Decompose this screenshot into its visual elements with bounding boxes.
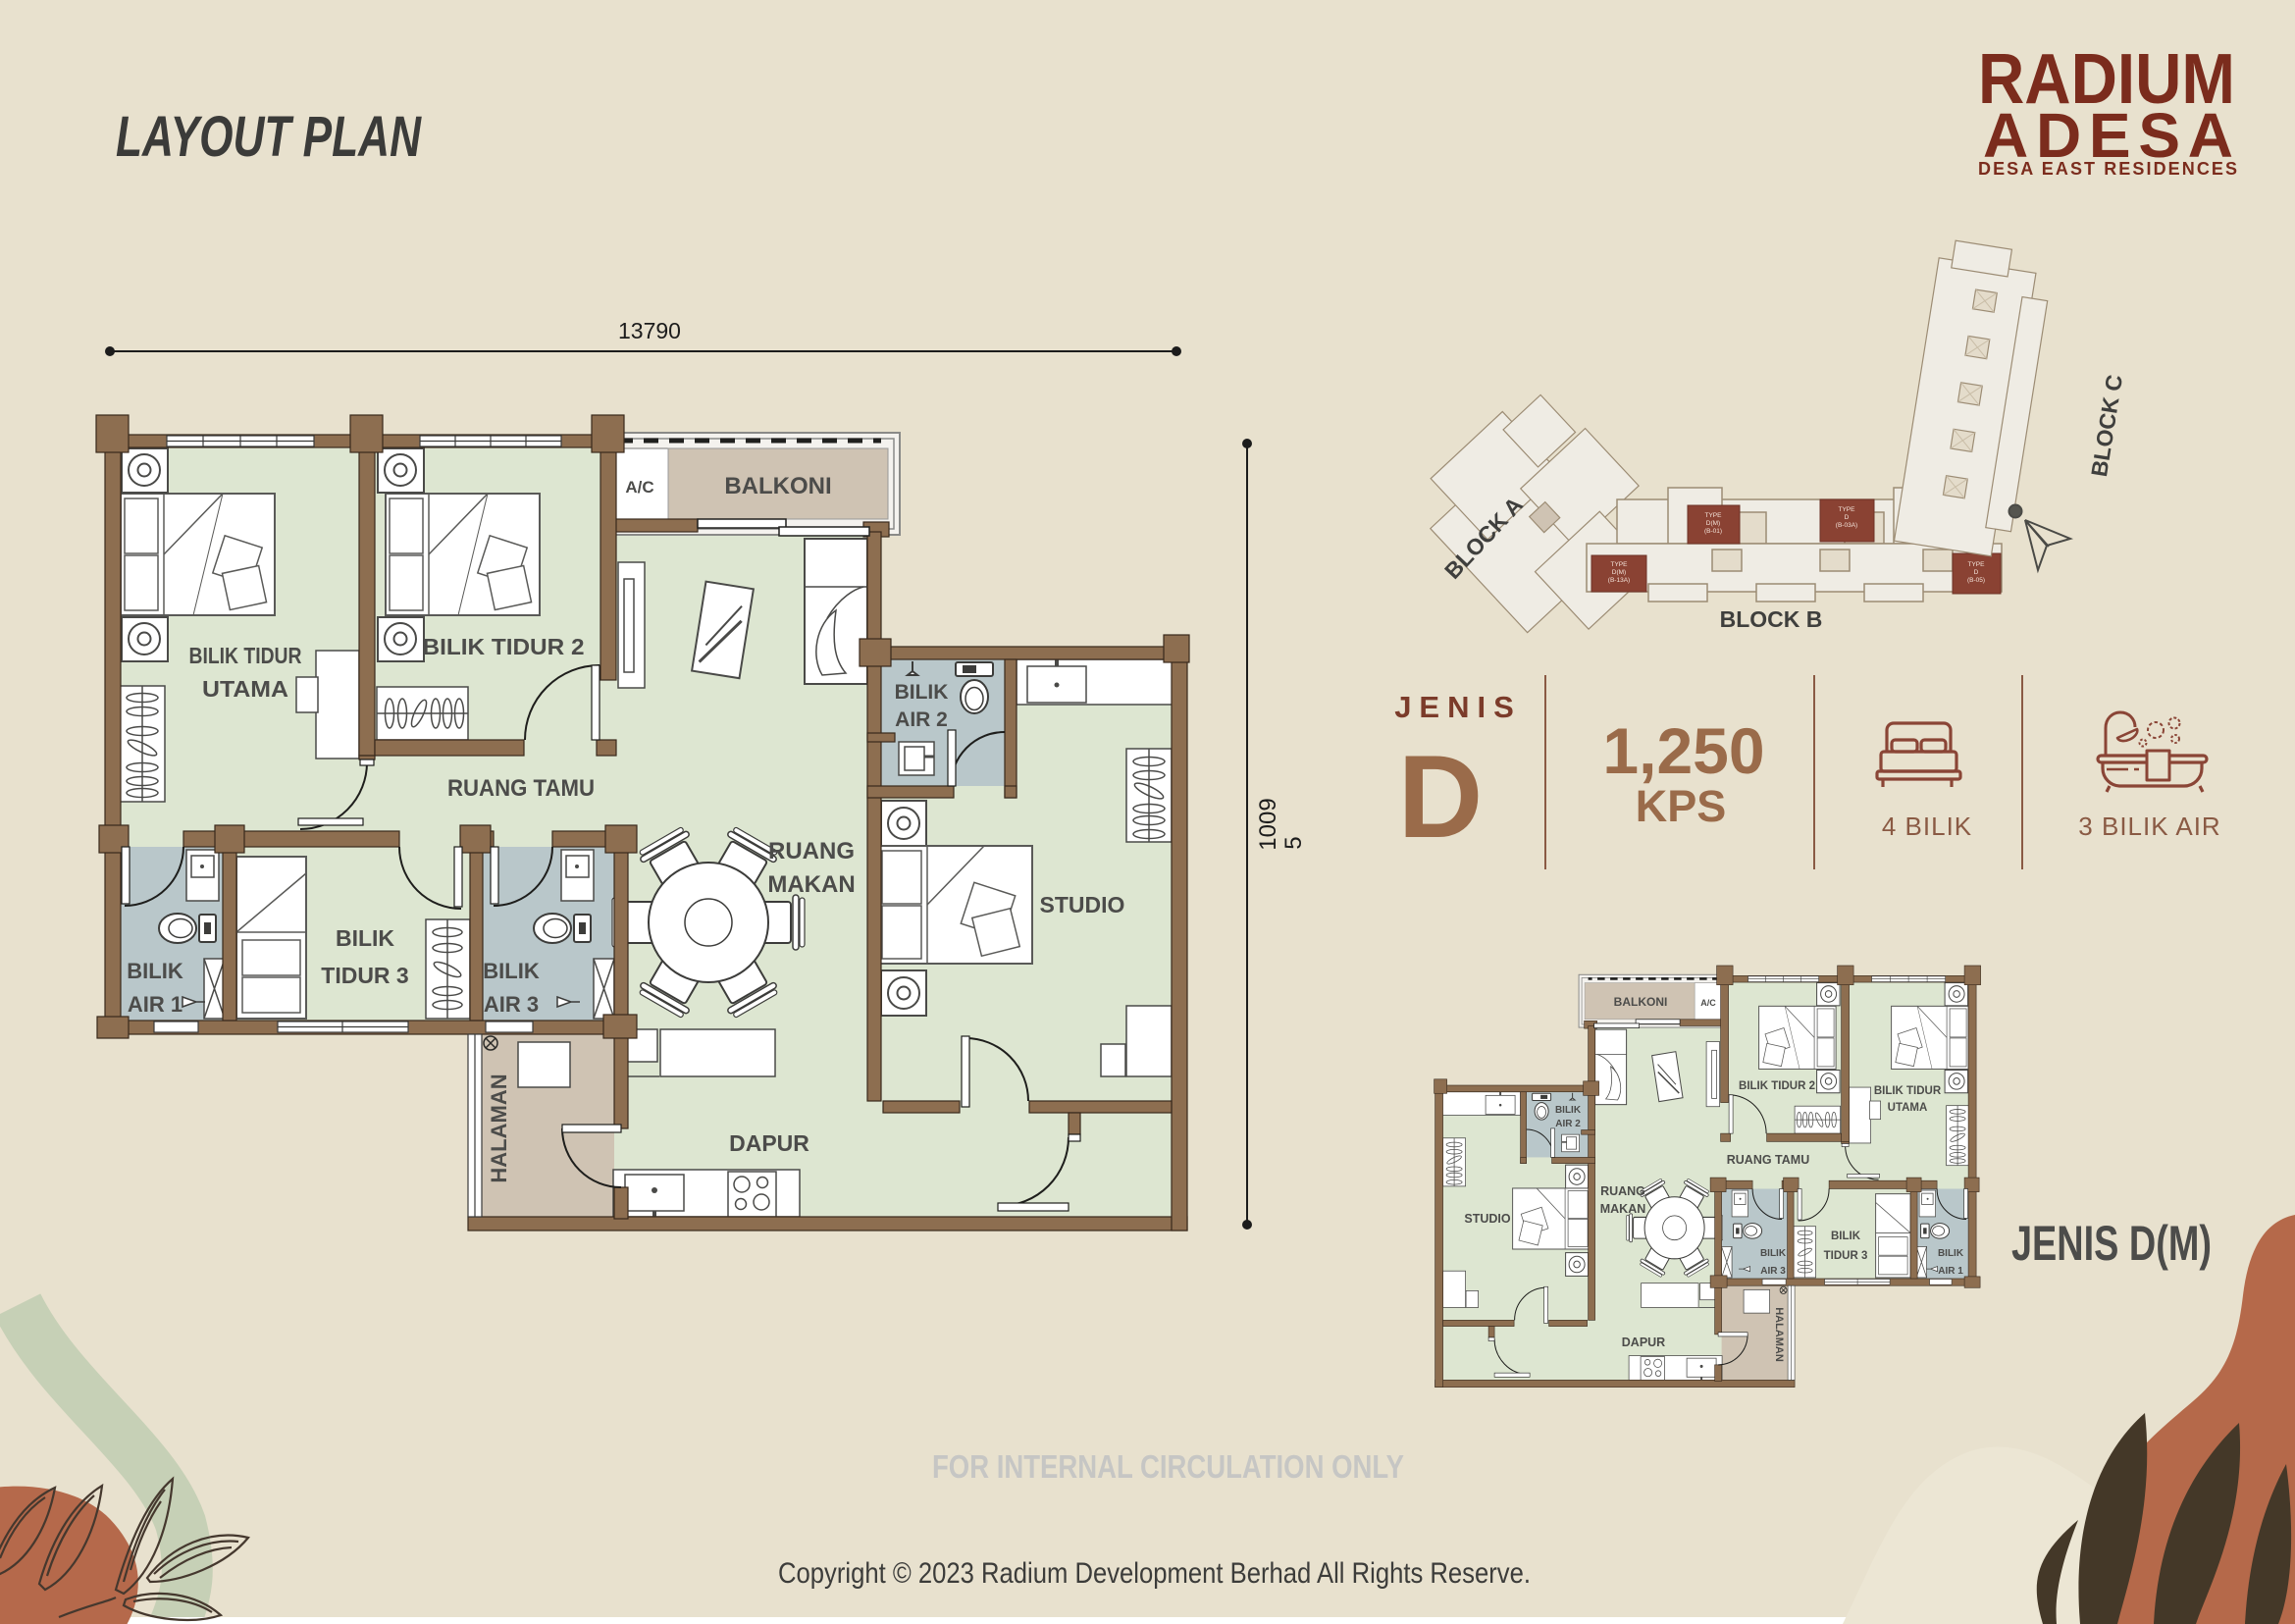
svg-text:BILIK: BILIK — [1938, 1248, 1964, 1259]
svg-text:BILIK: BILIK — [483, 959, 540, 983]
svg-text:RUANG: RUANG — [1600, 1184, 1645, 1198]
svg-text:AIR 2: AIR 2 — [1555, 1119, 1581, 1129]
svg-text:BILIK TIDUR 2: BILIK TIDUR 2 — [423, 634, 585, 659]
svg-text:HALAMAN: HALAMAN — [1773, 1307, 1785, 1362]
svg-text:BILIK: BILIK — [336, 925, 394, 951]
svg-text:BALKONI: BALKONI — [724, 473, 831, 499]
svg-text:STUDIO: STUDIO — [1464, 1212, 1511, 1226]
svg-text:RUANG: RUANG — [768, 838, 855, 864]
svg-text:Copyright © 2023 Radium Develo: Copyright © 2023 Radium Development Berh… — [778, 1557, 1531, 1590]
svg-text:AIR 3: AIR 3 — [484, 992, 539, 1017]
svg-text:D(M): D(M) — [1612, 569, 1626, 576]
svg-text:A/C: A/C — [1700, 998, 1716, 1008]
svg-text:AIR 1: AIR 1 — [128, 992, 183, 1017]
svg-text:BALKONI: BALKONI — [1614, 995, 1668, 1009]
svg-text:BILIK: BILIK — [1760, 1248, 1787, 1259]
svg-text:D: D — [1845, 514, 1850, 521]
svg-text:TYPE: TYPE — [1839, 506, 1856, 513]
svg-text:BILIK: BILIK — [1555, 1105, 1582, 1116]
svg-text:D(M): D(M) — [1706, 520, 1720, 527]
svg-text:AIR 1: AIR 1 — [1938, 1266, 1963, 1277]
svg-text:AIR 3: AIR 3 — [1760, 1266, 1786, 1277]
svg-text:MAKAN: MAKAN — [1600, 1202, 1646, 1216]
svg-text:TYPE: TYPE — [1611, 561, 1629, 568]
svg-text:AIR 2: AIR 2 — [895, 708, 948, 731]
svg-text:DESA EAST RESIDENCES: DESA EAST RESIDENCES — [1978, 159, 2237, 179]
svg-text:5: 5 — [1280, 836, 1307, 849]
svg-text:D: D — [1398, 731, 1484, 863]
svg-text:RUANG TAMU: RUANG TAMU — [1727, 1153, 1809, 1167]
svg-text:TIDUR 3: TIDUR 3 — [321, 963, 408, 988]
svg-text:KPS: KPS — [1636, 781, 1727, 831]
svg-text:FOR INTERNAL CIRCULATION ONLY: FOR INTERNAL CIRCULATION ONLY — [932, 1448, 1404, 1485]
svg-text:BILIK: BILIK — [895, 681, 949, 704]
svg-text:DAPUR: DAPUR — [729, 1130, 809, 1156]
svg-text:A/C: A/C — [625, 478, 653, 497]
svg-text:BILIK TIDUR: BILIK TIDUR — [189, 643, 302, 668]
svg-text:(B-13A): (B-13A) — [1608, 577, 1630, 584]
svg-text:LAYOUT PLAN: LAYOUT PLAN — [116, 105, 422, 169]
svg-text:(B-03A): (B-03A) — [1836, 522, 1857, 529]
svg-text:TYPE: TYPE — [1968, 561, 1986, 568]
svg-text:RUANG TAMU: RUANG TAMU — [447, 775, 595, 802]
svg-text:UTAMA: UTAMA — [1888, 1102, 1928, 1114]
svg-text:JENIS D(M): JENIS D(M) — [2011, 1216, 2212, 1271]
svg-text:3 BILIK AIR: 3 BILIK AIR — [2078, 812, 2220, 841]
svg-text:DAPUR: DAPUR — [1622, 1336, 1665, 1349]
svg-text:BILIK TIDUR: BILIK TIDUR — [1874, 1085, 1942, 1097]
svg-text:UTAMA: UTAMA — [202, 676, 288, 702]
svg-text:TIDUR 3: TIDUR 3 — [1824, 1250, 1868, 1262]
svg-text:D: D — [1974, 569, 1979, 576]
svg-text:JENIS: JENIS — [1394, 690, 1522, 724]
svg-text:4 BILIK: 4 BILIK — [1882, 812, 1972, 841]
svg-text:BILIK: BILIK — [127, 959, 183, 983]
svg-text:1,250: 1,250 — [1602, 714, 1764, 787]
svg-text:13790: 13790 — [618, 318, 681, 343]
svg-text:TYPE: TYPE — [1705, 512, 1723, 519]
svg-text:HALAMAN: HALAMAN — [487, 1074, 511, 1182]
svg-text:(B-05): (B-05) — [1967, 577, 1985, 584]
svg-text:1009: 1009 — [1255, 798, 1281, 850]
svg-text:BILIK TIDUR 2: BILIK TIDUR 2 — [1739, 1080, 1815, 1092]
svg-text:MAKAN: MAKAN — [767, 871, 855, 898]
svg-text:STUDIO: STUDIO — [1040, 892, 1125, 917]
svg-text:BLOCK B: BLOCK B — [1720, 606, 1823, 632]
svg-text:BILIK: BILIK — [1831, 1231, 1861, 1242]
svg-text:(B-01): (B-01) — [1704, 528, 1722, 535]
